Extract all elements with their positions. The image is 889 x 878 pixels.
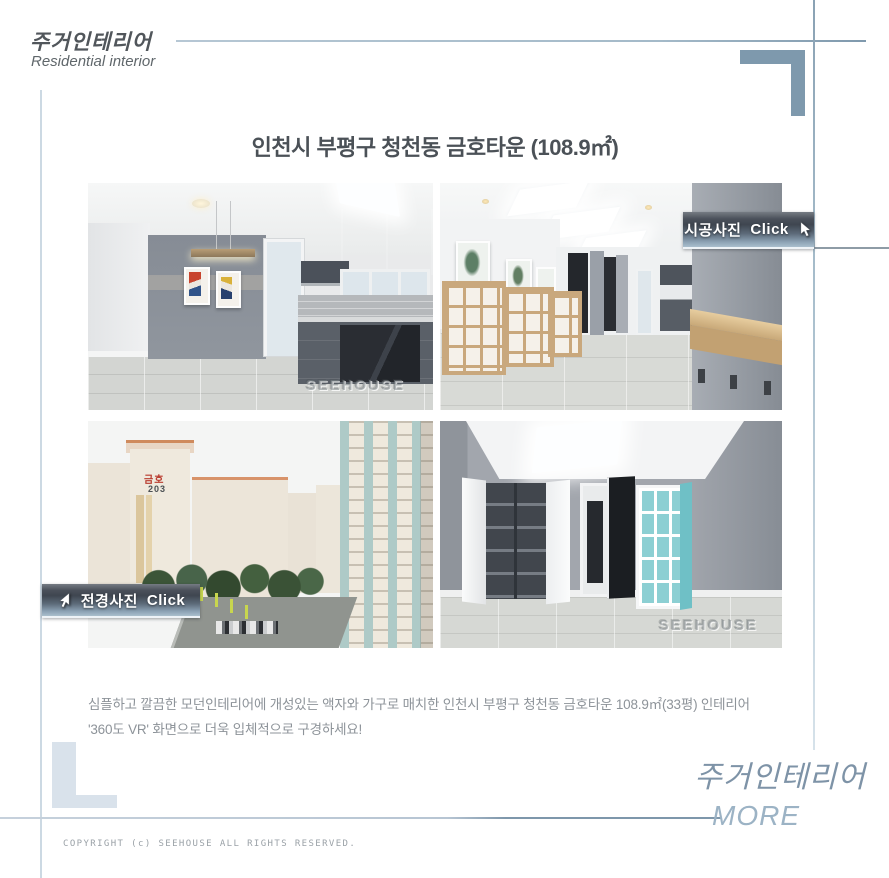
arrow-pointer-icon — [57, 592, 72, 609]
p2-leaf-art — [462, 249, 482, 279]
right-short-horizontal-line — [814, 247, 889, 249]
p2-downlight — [482, 199, 489, 204]
p2-downlight — [645, 205, 652, 210]
p3-foreground-building-shade — [420, 421, 433, 648]
p1-pendant-light — [191, 249, 255, 257]
top-right-corner-bracket-vertical — [791, 50, 805, 116]
left-vertical-line — [40, 90, 42, 878]
p1-art-frame-2 — [216, 271, 241, 308]
p3-street-pole — [215, 593, 218, 607]
p1-seehouse-watermark: SEEHOUSE — [306, 377, 405, 394]
p2-far-kitchen — [660, 265, 692, 331]
p4-closet-door-left — [462, 478, 486, 605]
panorama-photos-cta: Click — [147, 592, 185, 609]
p1-downlight — [192, 199, 210, 208]
header-brand-korean: 주거인테리어 — [30, 26, 152, 56]
construction-photos-button[interactable]: 시공사진 Click — [683, 212, 814, 249]
construction-photos-cta: Click — [750, 221, 788, 238]
p1-art-frame-1 — [184, 267, 210, 305]
p2-frosted-door — [636, 269, 653, 335]
description-line-2: '360도 VR' 화면으로 더욱 입체적으로 구경하세요! — [88, 717, 828, 742]
p4-seehouse-watermark: SEEHOUSE — [659, 617, 758, 634]
p1-art-2 — [221, 277, 232, 299]
p4-hallway-dark — [587, 501, 603, 583]
panorama-photos-button[interactable]: 전경사진 Click — [42, 584, 200, 618]
p3-building-sign-number: 203 — [148, 484, 188, 494]
copyright-text: COPYRIGHT (c) SEEHOUSE ALL RIGHTS RESERV… — [63, 839, 356, 849]
photo-bedroom-closet-interior[interactable]: SEEHOUSE — [440, 421, 782, 648]
page-title: 인천시 부평구 청천동 금호타운 (108.9㎡) — [88, 130, 782, 162]
p3-street-pole — [230, 599, 233, 613]
p4-closet-door-right — [546, 480, 570, 605]
p1-backsplash — [298, 295, 433, 318]
p4-black-door — [607, 476, 635, 598]
p2-wood-shelf-unit-1 — [442, 281, 506, 375]
construction-photos-label: 시공사진 — [684, 219, 741, 240]
p2-bench-leg — [698, 369, 705, 383]
p1-pendant-wire — [230, 201, 231, 251]
p2-dark-door-2 — [604, 257, 616, 331]
p2-wood-shelf-unit-3 — [548, 291, 582, 357]
bottom-horizontal-line — [0, 817, 722, 819]
right-vertical-line — [813, 0, 815, 750]
p4-teal-cube-shelf — [636, 485, 686, 609]
p3-street-pole — [200, 587, 203, 601]
p3-parked-cars — [216, 621, 278, 634]
p4-open-closet — [486, 483, 546, 599]
p2-bench-leg — [764, 381, 771, 395]
p3-building-left — [88, 463, 130, 591]
p2-gray-column-1 — [590, 251, 604, 335]
p3-street-pole — [245, 605, 248, 619]
p2-leaf-art — [511, 265, 525, 289]
description-text: 심플하고 깔끔한 모던인테리어에 개성있는 액자와 가구로 매치한 인천시 부평… — [88, 692, 828, 742]
p2-gray-column-2 — [616, 255, 628, 333]
panorama-photos-label: 전경사진 — [81, 590, 138, 611]
p2-bench-leg — [730, 375, 737, 389]
p2-wood-shelf-unit-2 — [502, 287, 554, 367]
bottom-left-corner-bracket-horizontal — [52, 795, 117, 808]
p1-pendant-wire — [216, 201, 217, 251]
header-brand-english: Residential interior — [31, 53, 155, 70]
p1-art-1 — [189, 272, 201, 296]
mouse-cursor-icon — [798, 221, 813, 238]
footer-brand-korean: 주거인테리어 — [694, 752, 866, 796]
photo-kitchen-dining-interior[interactable]: SEEHOUSE — [88, 183, 433, 410]
footer-more-link[interactable]: MORE — [712, 800, 800, 832]
description-line-1: 심플하고 깔끔한 모던인테리어에 개성있는 액자와 가구로 매치한 인천시 부평… — [88, 692, 828, 717]
page: 주거인테리어 Residential interior 인천시 부평구 청천동 … — [0, 0, 889, 878]
header-divider-line — [176, 40, 866, 42]
p1-black-appliance — [340, 325, 420, 382]
p1-left-wall — [88, 223, 150, 357]
p4-teal-shelf-side — [680, 482, 692, 610]
